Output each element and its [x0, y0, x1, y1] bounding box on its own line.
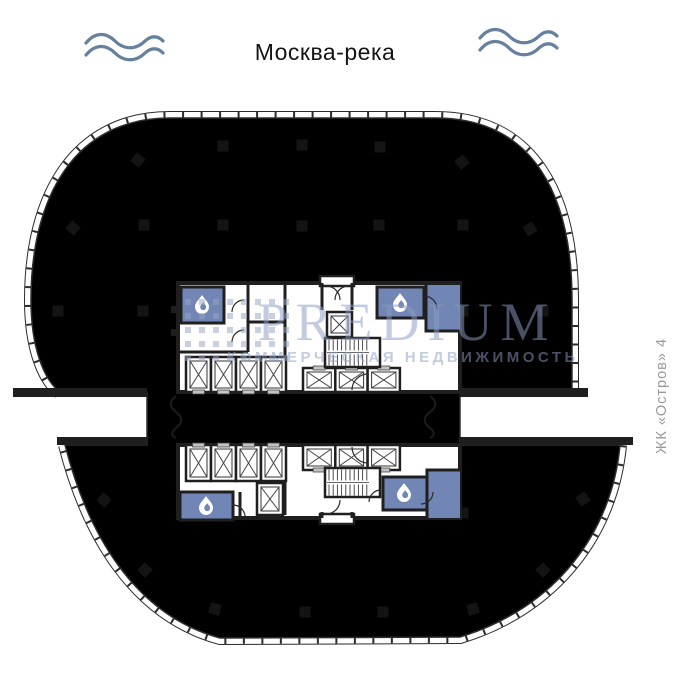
- elevator-door: [268, 390, 280, 394]
- elevator-door: [243, 443, 255, 447]
- structural-column: [458, 220, 469, 231]
- logo-dot: [227, 327, 233, 333]
- elevator-shaft: [211, 443, 236, 481]
- logo-dot: [199, 327, 205, 333]
- elevator-shaft: [261, 443, 286, 481]
- structural-column: [138, 306, 149, 317]
- structural-column: [375, 142, 386, 153]
- wall-bar: [57, 437, 147, 445]
- structural-column: [218, 141, 229, 152]
- logo-dot: [185, 355, 191, 361]
- logo-dot: [241, 341, 247, 347]
- elevator-door: [313, 366, 325, 370]
- elevator-shaft: [236, 443, 261, 481]
- header: Москва-река: [86, 29, 557, 65]
- logo-dot: [185, 299, 191, 305]
- logo-dot: [199, 355, 205, 361]
- elevator-door: [193, 390, 205, 394]
- wall-tab: [171, 306, 179, 313]
- wave-icon: [86, 34, 163, 59]
- wave-icon: [480, 29, 557, 54]
- elevator-door: [218, 443, 230, 447]
- structural-column: [374, 220, 385, 231]
- structural-column: [378, 607, 389, 618]
- elevator-door: [243, 390, 255, 394]
- watermark-tagline: КОММЕРЧЕСКАЯ НЕДВИЖИМОСТЬ: [227, 349, 579, 366]
- plate-patch: [427, 470, 460, 518]
- logo-dot: [213, 355, 219, 361]
- river-label: Москва-река: [255, 39, 396, 65]
- logo-dot: [213, 313, 219, 319]
- watermark: PREDIUM КОММЕРЧЕСКАЯ НЕДВИЖИМОСТЬ: [185, 292, 579, 366]
- wall-bar: [460, 388, 588, 397]
- floor-plan-canvas: PREDIUM КОММЕРЧЕСКАЯ НЕДВИЖИМОСТЬ Москва…: [0, 0, 697, 670]
- logo-dot: [227, 341, 233, 347]
- elevator-door: [218, 390, 230, 394]
- logo-dot: [185, 327, 191, 333]
- logo-dot: [199, 341, 205, 347]
- elevator-shaft: [186, 443, 211, 481]
- vestibule-top: [320, 276, 354, 286]
- elevator-door: [268, 443, 280, 447]
- logo-dot: [227, 299, 233, 305]
- wall-bar: [460, 437, 633, 445]
- elevator-shaft: [186, 357, 211, 394]
- structural-column: [300, 607, 311, 618]
- logo-dot: [185, 313, 191, 319]
- watermark-brand: PREDIUM: [257, 292, 556, 352]
- staircase: [325, 468, 380, 497]
- logo-dot: [227, 313, 233, 319]
- logo-dot: [213, 299, 219, 305]
- wall-tab: [171, 329, 179, 336]
- structural-column: [297, 221, 308, 232]
- logo-dot: [213, 327, 219, 333]
- elevator-shaft: [257, 483, 283, 515]
- wall-bar: [13, 388, 147, 397]
- vestibule-bottom: [320, 514, 354, 524]
- elevator-shaft: [368, 366, 400, 392]
- project-label: ЖК «Остров» 4: [654, 338, 670, 454]
- structural-column: [297, 140, 308, 151]
- logo-dot: [241, 327, 247, 333]
- elevator-door: [193, 443, 205, 447]
- elevator-shaft: [303, 366, 335, 392]
- logo-dot: [241, 313, 247, 319]
- elevator-door: [313, 468, 325, 472]
- logo-dot: [241, 299, 247, 305]
- logo-dot: [199, 299, 205, 305]
- structural-column: [218, 220, 229, 231]
- logo-dot: [185, 341, 191, 347]
- structural-column: [53, 306, 64, 317]
- logo-dot: [199, 313, 205, 319]
- logo-dot: [213, 341, 219, 347]
- elevator-shaft: [335, 366, 367, 392]
- structural-column: [139, 220, 150, 231]
